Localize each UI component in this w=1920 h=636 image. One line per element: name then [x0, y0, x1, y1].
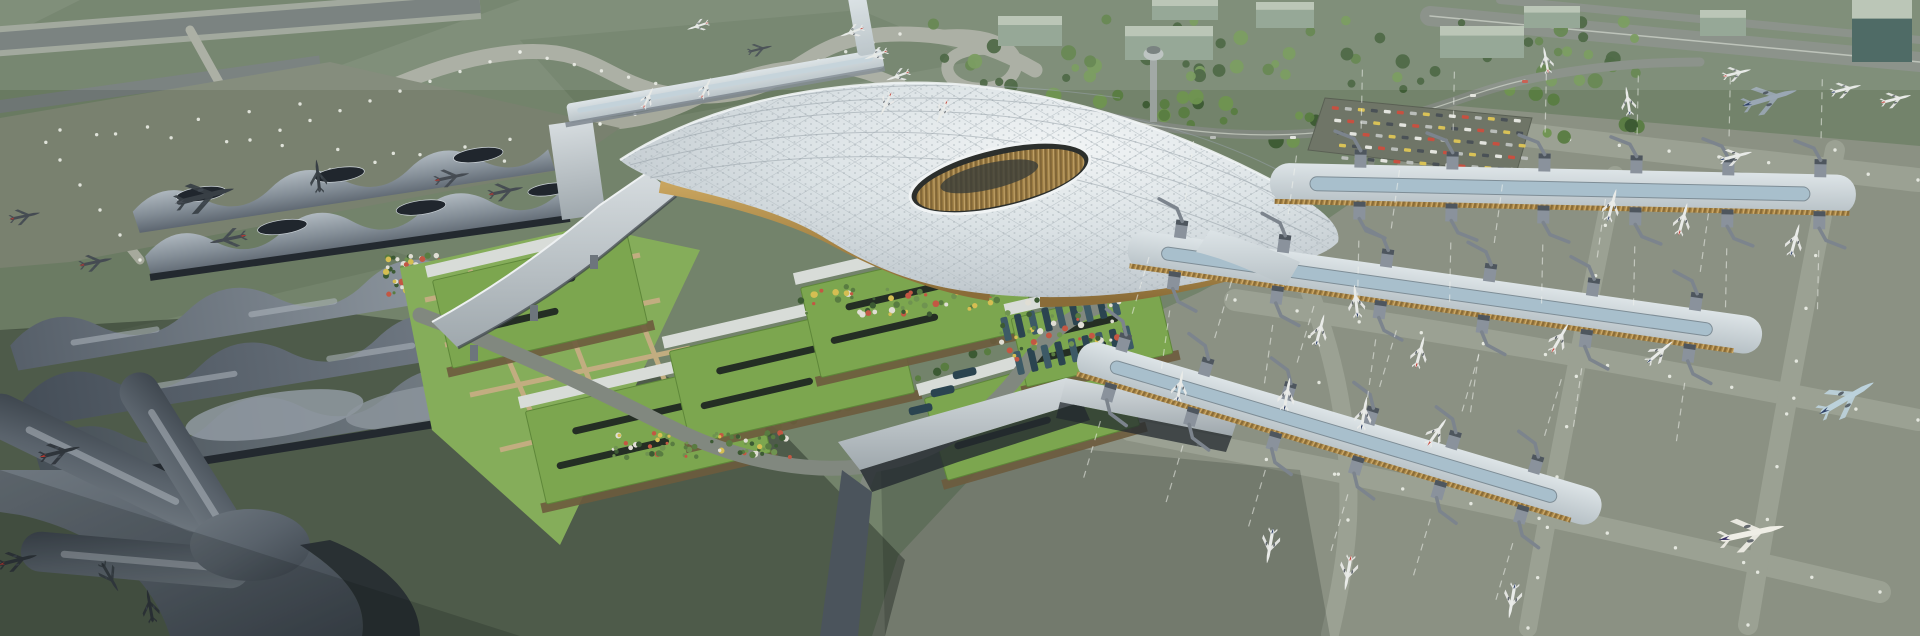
car [1334, 119, 1341, 123]
car [1518, 144, 1525, 148]
car [1466, 140, 1473, 144]
flower [667, 435, 670, 438]
car [1399, 123, 1406, 127]
car [1508, 155, 1515, 159]
flower [744, 438, 748, 442]
car [1479, 141, 1486, 145]
flower [670, 442, 675, 447]
car [1210, 136, 1216, 139]
car [1477, 128, 1484, 132]
car [1341, 156, 1348, 160]
flower [1034, 297, 1039, 302]
car [1410, 111, 1417, 115]
flower [908, 300, 912, 304]
car [1378, 146, 1385, 150]
car [1367, 158, 1374, 162]
flower [715, 432, 718, 435]
marker-dot [1878, 590, 1881, 593]
flower [628, 445, 633, 450]
flower [1014, 336, 1018, 340]
marker-dot [418, 153, 421, 156]
flower [812, 302, 815, 305]
flower [1108, 342, 1111, 345]
flower [1110, 320, 1114, 324]
car [1449, 114, 1456, 118]
flower [763, 448, 766, 451]
car [1414, 136, 1421, 140]
flower [1026, 311, 1032, 317]
flower [1095, 336, 1100, 341]
flower [994, 297, 1001, 304]
marker-dot [1536, 576, 1539, 579]
flower [819, 289, 823, 293]
car [1386, 122, 1393, 126]
flower [924, 293, 927, 296]
tree [1178, 107, 1189, 118]
marker-dot [1674, 546, 1677, 549]
car [1427, 137, 1434, 141]
flower [1075, 313, 1081, 319]
flower [694, 454, 698, 458]
flower [1032, 326, 1036, 330]
flower [648, 444, 652, 448]
airport-aerial-rendering: Aerial rendering of an airport terminal … [0, 0, 1920, 636]
marker-dot [1916, 418, 1919, 421]
marker-dot [1795, 359, 1798, 362]
marker-dot [95, 133, 98, 136]
flower [788, 455, 792, 459]
marker-dot [58, 128, 61, 131]
car [1521, 156, 1528, 160]
marker-dot [169, 136, 172, 139]
flower [392, 256, 396, 260]
flower [888, 295, 894, 301]
car [1375, 134, 1382, 138]
flower [1062, 325, 1068, 331]
flower [917, 289, 923, 295]
flower [1031, 339, 1037, 345]
marker-dot [1401, 487, 1404, 490]
car [1393, 160, 1400, 164]
flower [779, 434, 786, 441]
flower [771, 449, 777, 455]
marker-dot [1730, 386, 1733, 389]
flower [383, 269, 389, 275]
tree [1188, 89, 1203, 104]
car [1469, 153, 1476, 157]
flower [889, 307, 895, 313]
marker-dot [1333, 472, 1336, 475]
flower [614, 450, 618, 454]
marker-dot [281, 144, 284, 147]
flower [901, 310, 905, 314]
tree [1158, 110, 1169, 121]
car [1365, 145, 1372, 149]
marker-dot [98, 208, 101, 211]
marker-dot [1233, 298, 1236, 301]
marker-dot [1618, 144, 1621, 147]
flower [844, 290, 850, 296]
tower-roof [1629, 207, 1641, 212]
flower [738, 450, 743, 455]
flower [865, 310, 871, 316]
flower [395, 257, 399, 261]
car [1438, 126, 1445, 130]
car [1475, 116, 1482, 120]
marker-dot [58, 158, 61, 161]
car [1347, 119, 1354, 123]
marker-dot [1565, 425, 1568, 428]
tower-roof [1813, 211, 1825, 216]
car [1464, 128, 1471, 132]
flower [893, 301, 900, 308]
marker-dot [247, 110, 250, 113]
flower [888, 313, 891, 316]
flower [1089, 333, 1095, 339]
marker-dot [1537, 517, 1540, 520]
flower [757, 444, 762, 449]
flower [386, 292, 391, 297]
flower [392, 270, 396, 274]
marker-dot [1833, 148, 1836, 151]
flower [408, 259, 414, 265]
flower [1076, 306, 1083, 313]
marker-dot [1792, 396, 1795, 399]
flower [901, 306, 905, 310]
marker-dot [225, 140, 228, 143]
flower [649, 451, 655, 457]
flower [1076, 318, 1079, 321]
marker-dot [1854, 407, 1857, 410]
marker-dot [1916, 178, 1919, 181]
flower [851, 288, 856, 293]
car [1384, 110, 1391, 114]
marker-dot [1775, 465, 1778, 468]
marker-dot [1668, 375, 1671, 378]
flower [844, 284, 849, 289]
flower [736, 434, 740, 438]
car [1290, 136, 1296, 139]
flower [692, 444, 698, 450]
marker-dot [463, 145, 466, 148]
flower [805, 312, 808, 315]
marker-dot [503, 159, 506, 162]
flower [771, 435, 776, 440]
car [1436, 113, 1443, 117]
flower [922, 302, 928, 308]
tower-roof [1354, 201, 1366, 206]
marker-dot [44, 141, 47, 144]
car [1488, 117, 1495, 121]
marker-dot [146, 125, 149, 128]
flower [624, 441, 628, 445]
car [1339, 144, 1346, 148]
tree [933, 368, 941, 376]
marker-dot [1546, 526, 1549, 529]
flower [393, 291, 396, 294]
flower [1069, 341, 1074, 346]
marker-dot [598, 122, 601, 125]
flower [967, 307, 971, 311]
marker-dot [1526, 626, 1529, 629]
flower [932, 300, 939, 307]
tree [1218, 96, 1233, 111]
car [1514, 119, 1521, 123]
marker-dot [392, 152, 395, 155]
flower [1027, 329, 1031, 333]
car [1332, 106, 1339, 110]
marker-dot [1867, 173, 1870, 176]
car [1482, 153, 1489, 157]
flower [685, 441, 688, 444]
tower-roof [1721, 209, 1733, 214]
flower [612, 454, 615, 457]
marker-dot [338, 109, 341, 112]
marker-dot [373, 161, 376, 164]
marker-dot [1667, 149, 1670, 152]
car [1495, 154, 1502, 158]
marker-dot [1785, 412, 1788, 415]
flower [652, 431, 656, 435]
flower [393, 280, 397, 284]
car [1397, 111, 1404, 115]
flower [1109, 303, 1113, 307]
flower [972, 303, 977, 308]
tower-roof [1446, 203, 1458, 208]
marker-dot [508, 138, 511, 141]
flower [419, 256, 425, 262]
tree [984, 348, 991, 355]
tree [1142, 101, 1150, 109]
marker-dot [1810, 576, 1813, 579]
marker-dot [1544, 353, 1547, 356]
car [1404, 148, 1411, 152]
flower [774, 444, 778, 448]
car [1432, 162, 1439, 166]
car [1419, 161, 1426, 165]
marker-dot [1814, 254, 1817, 257]
flower [914, 296, 920, 302]
car [1490, 129, 1497, 133]
flower [1078, 322, 1084, 328]
marker-dot [1265, 458, 1268, 461]
marker-dot [298, 102, 301, 105]
flower [1007, 347, 1013, 353]
car [1451, 127, 1458, 131]
car [1425, 125, 1432, 129]
flower [1015, 357, 1020, 362]
flower [1051, 352, 1055, 356]
car [1388, 135, 1395, 139]
flower [944, 302, 948, 306]
tree [1543, 128, 1552, 137]
flower [1057, 332, 1062, 337]
flower [1078, 337, 1081, 340]
flower [726, 440, 733, 447]
flower [1000, 323, 1005, 328]
car [1345, 107, 1352, 111]
marker-dot [1295, 309, 1298, 312]
flower [645, 452, 649, 456]
marker-dot [1746, 623, 1749, 626]
car [1501, 118, 1508, 122]
flower [666, 442, 669, 445]
flower [905, 293, 911, 299]
tree [1625, 119, 1638, 132]
marker-dot [1606, 531, 1609, 534]
flower [729, 435, 733, 439]
flower [750, 441, 754, 445]
marker-dot [1742, 561, 1745, 564]
marker-dot [336, 148, 339, 151]
marker-dot [1317, 381, 1320, 384]
marker-dot [1357, 320, 1360, 323]
car [1453, 139, 1460, 143]
flower [624, 455, 629, 460]
tree [1305, 112, 1315, 122]
marker-dot [1804, 307, 1807, 310]
flower [614, 446, 618, 450]
flower [886, 288, 890, 292]
tree [1160, 99, 1170, 109]
flower [765, 443, 772, 450]
car [1373, 121, 1380, 125]
flower [939, 300, 944, 305]
car [1391, 147, 1398, 151]
car [1362, 133, 1369, 137]
marker-dot [1575, 375, 1578, 378]
flower [1037, 328, 1043, 334]
flower [1013, 354, 1017, 358]
car [1412, 124, 1419, 128]
car [1417, 149, 1424, 153]
flower [726, 432, 730, 436]
marker-dot [78, 183, 81, 186]
flower [872, 297, 875, 300]
flower [386, 257, 392, 263]
flower [1020, 347, 1023, 350]
marker-dot [197, 118, 200, 121]
tree [1176, 91, 1189, 104]
car [1505, 143, 1512, 147]
tree [1220, 117, 1228, 125]
flower [636, 441, 642, 447]
flower [618, 434, 622, 438]
scene-canvas: Aerial rendering of an airport terminal … [0, 0, 1920, 636]
marker-dot [248, 138, 251, 141]
car [1503, 130, 1510, 134]
flower [386, 265, 390, 269]
tree [1295, 112, 1303, 120]
car [1423, 112, 1430, 116]
flower [656, 450, 662, 456]
flower [434, 253, 439, 258]
car [1380, 159, 1387, 163]
marker-dot [114, 132, 117, 135]
marker-dot [1420, 331, 1423, 334]
flower [755, 451, 759, 455]
flower [718, 435, 721, 438]
tree [1547, 93, 1559, 105]
tree [1231, 108, 1238, 115]
tree [915, 375, 921, 381]
flower [1051, 321, 1057, 327]
flower [1109, 338, 1112, 341]
flower [1031, 345, 1037, 351]
flower [872, 310, 877, 315]
flower [927, 311, 932, 316]
flower [859, 311, 865, 317]
flower [832, 289, 839, 296]
flower [1046, 332, 1052, 338]
car [1470, 94, 1476, 97]
marker-dot [1767, 161, 1770, 164]
flower [684, 445, 688, 449]
tree [1557, 130, 1571, 144]
marker-dot [368, 99, 371, 102]
marker-dot [118, 233, 121, 236]
flower [798, 297, 805, 304]
flower [710, 440, 713, 443]
marker-dot [138, 258, 141, 261]
flower [1050, 314, 1054, 318]
marker-dot [308, 119, 311, 122]
flower [999, 339, 1004, 344]
flower [758, 436, 761, 439]
flower [660, 445, 666, 451]
flower [1000, 331, 1003, 334]
flower [1025, 300, 1031, 306]
marker-dot [1346, 518, 1349, 521]
flower [760, 452, 764, 456]
car [1492, 142, 1499, 146]
car [1401, 136, 1408, 140]
tree [1112, 90, 1123, 101]
flower [425, 253, 431, 259]
marker-dot [1604, 224, 1607, 227]
flower [408, 254, 413, 259]
flower [658, 433, 663, 438]
flower [811, 291, 817, 297]
tower-roof [1537, 205, 1549, 210]
flower [835, 296, 841, 302]
marker-dot [1766, 518, 1769, 521]
flower [1005, 310, 1011, 316]
car [1430, 150, 1437, 154]
flower [718, 449, 721, 452]
flower [850, 292, 853, 295]
flower [655, 438, 660, 443]
flower [870, 302, 876, 308]
car [1371, 109, 1378, 113]
marker-dot [278, 129, 281, 132]
car [1406, 161, 1413, 165]
marker-dot [1756, 571, 1759, 574]
flower [745, 449, 749, 453]
car [1462, 115, 1469, 119]
marker-dot [1469, 502, 1472, 505]
marker-dot [1337, 472, 1340, 475]
flower [764, 432, 768, 436]
flower [850, 296, 854, 300]
tree [940, 363, 949, 372]
flower [685, 455, 688, 458]
